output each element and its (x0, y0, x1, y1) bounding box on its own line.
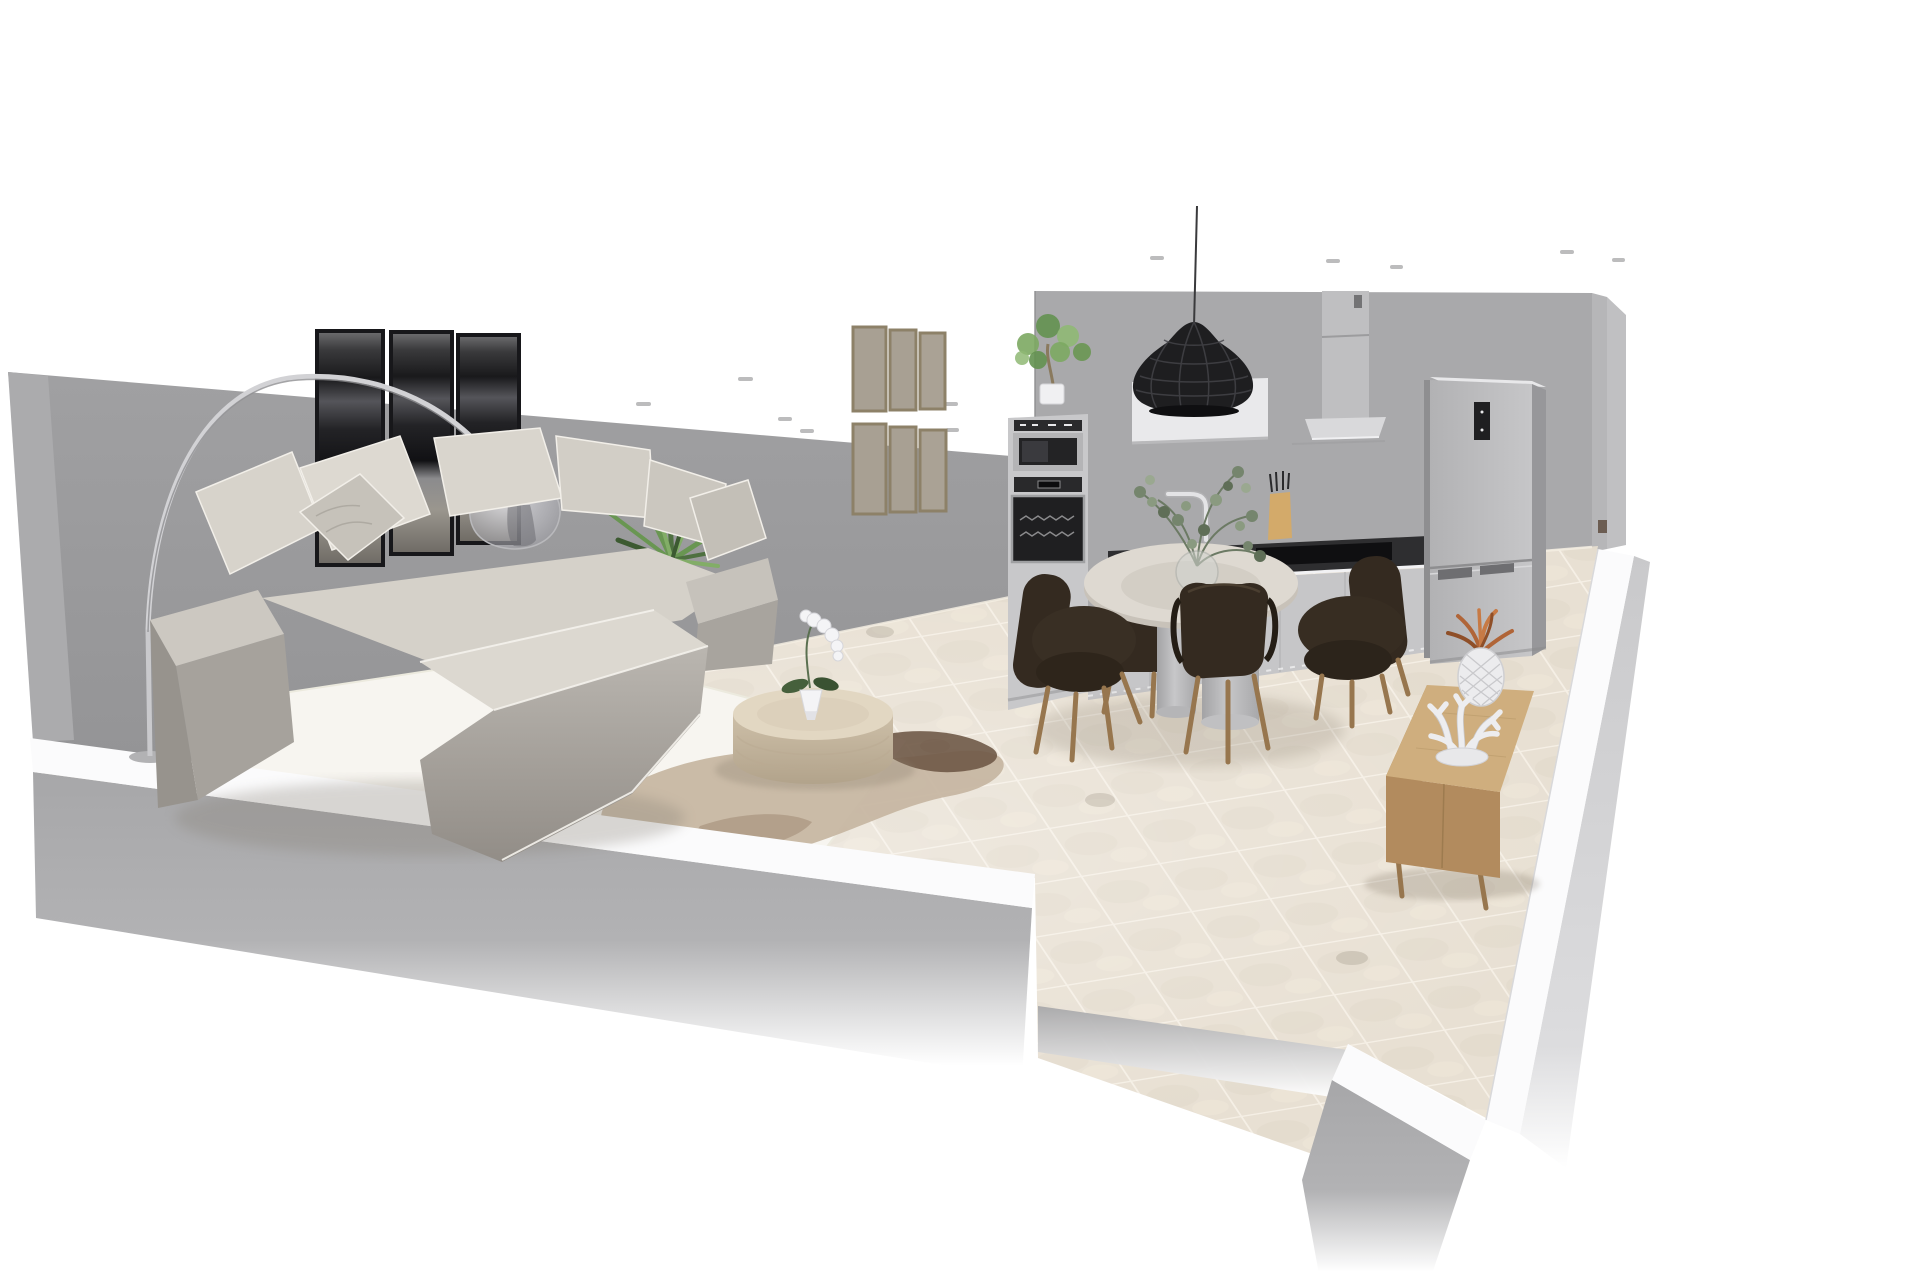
spotlight-icon (1560, 250, 1574, 254)
fridge-panel-led (1481, 429, 1484, 432)
spotlight-icon (1326, 259, 1340, 263)
pendant-rim (1149, 405, 1239, 417)
knife-block-body (1268, 492, 1292, 540)
chair-seat-front (1304, 640, 1392, 680)
east-wall-upper (1607, 297, 1626, 549)
spotlight-icon (778, 417, 792, 421)
lamp-pole (148, 630, 150, 756)
spotlight-icon (1390, 265, 1403, 269)
fridge-freezer[interactable] (1424, 377, 1546, 664)
fridge-control-panel (1474, 402, 1490, 440)
fridge-side (1532, 384, 1546, 656)
pineapple-body (1458, 648, 1504, 706)
spotlight-icon (800, 429, 814, 433)
floor-spot (1085, 793, 1115, 807)
throw-pillow (556, 436, 654, 518)
wall-junction-mark (1598, 520, 1607, 533)
spotlight-icon (1150, 256, 1164, 260)
hood-chimney (1322, 291, 1369, 430)
microwave-reflection (1022, 441, 1048, 462)
gallery-frame (890, 427, 916, 512)
gallery-frame (853, 327, 886, 411)
spotlight-icon (946, 428, 959, 432)
oven-door (1012, 496, 1084, 562)
spotlight-icon (1612, 258, 1625, 262)
floor-spot (1336, 951, 1368, 965)
coral-base (1436, 748, 1488, 766)
gallery-frame (920, 333, 945, 409)
oven-display (1038, 481, 1060, 488)
spotlight-icon (738, 377, 753, 381)
gallery-frame (853, 424, 886, 514)
orchid-pot-foot (805, 712, 817, 720)
floor-spot (866, 626, 894, 638)
hood-vent-slot (1354, 295, 1362, 308)
hood-flare (1305, 417, 1386, 439)
render-canvas (0, 0, 1920, 1280)
scene-3d-view (0, 0, 1920, 1280)
corner-return-wall (1592, 293, 1607, 552)
tree-pot (1040, 384, 1064, 404)
fridge-panel-led (1481, 411, 1484, 414)
spotlight-icon (636, 402, 651, 406)
gallery-frame (920, 430, 946, 511)
gallery-frame (890, 330, 916, 410)
chair-leg (1152, 674, 1154, 716)
sideboard-shadow (1364, 868, 1540, 900)
chair-backrest (1180, 583, 1268, 679)
